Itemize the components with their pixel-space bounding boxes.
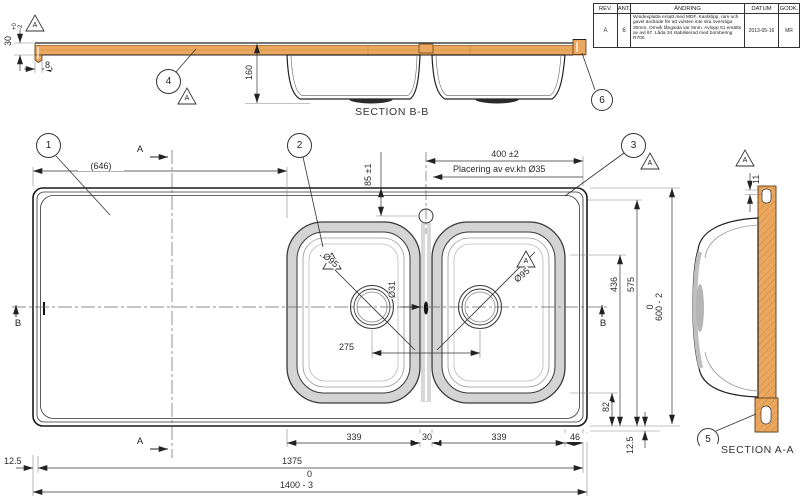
dim-646: (646) <box>78 162 124 171</box>
drawing-linework <box>0 0 800 502</box>
rev-col-header: REV. <box>594 4 618 14</box>
datum-col-header: DATUM <box>745 4 779 14</box>
cut-letter-a-bottom: A <box>134 436 146 447</box>
andring-col-header: ÄNDRING <box>631 4 745 14</box>
revision-count: 6 <box>618 14 631 47</box>
balloon-5-number: 5 <box>705 434 711 445</box>
dim-1400: 1400 - 3 <box>279 481 314 490</box>
cut-letter-a-top: A <box>134 144 146 155</box>
dim-thickness-tolerance: +0 -2 <box>12 23 25 30</box>
dim-gap-11: 11 <box>752 174 761 185</box>
revision-description: Windexplatta ersatt med MDF. Kantklipp, … <box>631 14 745 47</box>
section-aa-view <box>693 150 778 432</box>
faucet-hole-note: Placering av ev.kh Ø35 <box>452 165 546 174</box>
dim-85: 85 ±1 <box>364 163 373 187</box>
dim-46: 46 <box>562 433 588 442</box>
revision-date: 2013-05-16 <box>745 14 779 47</box>
balloon-3-number: 3 <box>631 140 637 151</box>
dim-575: 575 <box>627 276 636 293</box>
cut-letter-b-left: B <box>12 318 24 329</box>
ant-col-header: ANT. <box>618 4 631 14</box>
section-aa-label: SECTION A-A <box>700 444 800 456</box>
datum-a-icon: A <box>740 157 750 164</box>
dim-400: 400 ±2 <box>464 150 546 159</box>
dim-thickness-30: 30 <box>4 35 13 47</box>
revision-letter: A <box>594 14 618 47</box>
godk-col-header: GODK. <box>779 4 799 14</box>
dim-1375: 1375 <box>281 457 303 466</box>
dim-rim-right: 12.5 <box>626 435 635 455</box>
dim-339-right: 339 <box>478 433 520 442</box>
datum-a-icon: A <box>645 160 655 167</box>
balloon-1-number: 1 <box>46 140 52 151</box>
dim-275: 275 <box>338 343 355 352</box>
balloon-6-number: 6 <box>599 95 605 106</box>
revision-table: REV. ANT. ÄNDRING DATUM GODK. A 6 Windex… <box>593 3 800 48</box>
cut-letter-b-right: B <box>597 318 609 329</box>
balloon-4: 4 <box>156 69 181 94</box>
dim-depth-160: 160 <box>245 64 254 81</box>
datum-a-icon: A <box>521 258 531 265</box>
balloon-1: 1 <box>36 133 61 158</box>
dim-rim-left: 12.5 <box>3 457 23 466</box>
plan-view <box>12 150 608 458</box>
dim-1400-upper-tol: 0 <box>306 470 313 479</box>
dim-339-left: 339 <box>333 433 375 442</box>
dim-436: 436 <box>610 276 619 293</box>
balloon-3: 3 <box>621 133 646 158</box>
dim-82: 82 <box>602 401 611 413</box>
tolerance-lower: -2 <box>18 23 24 30</box>
datum-a-icon: A <box>182 95 192 102</box>
balloon-2: 2 <box>287 133 312 158</box>
revision-approver: MR <box>779 14 799 47</box>
balloon-4-number: 4 <box>166 76 172 87</box>
dim-edge-8: 8 <box>44 61 51 70</box>
section-bb-view <box>35 40 586 104</box>
technical-drawing-sink: REV. ANT. ÄNDRING DATUM GODK. A 6 Windex… <box>0 0 800 502</box>
balloon-2-number: 2 <box>297 140 303 151</box>
dim-dia31: Ø31 <box>388 280 397 299</box>
dim-600-value: 600 - 2 <box>655 287 664 327</box>
section-bb-label: SECTION B-B <box>330 106 454 118</box>
dim-30-divider: 30 <box>415 433 439 442</box>
dim-600: 0 600 - 2 <box>646 287 665 327</box>
datum-a-icon: A <box>30 22 40 29</box>
balloon-6: 6 <box>591 89 613 111</box>
